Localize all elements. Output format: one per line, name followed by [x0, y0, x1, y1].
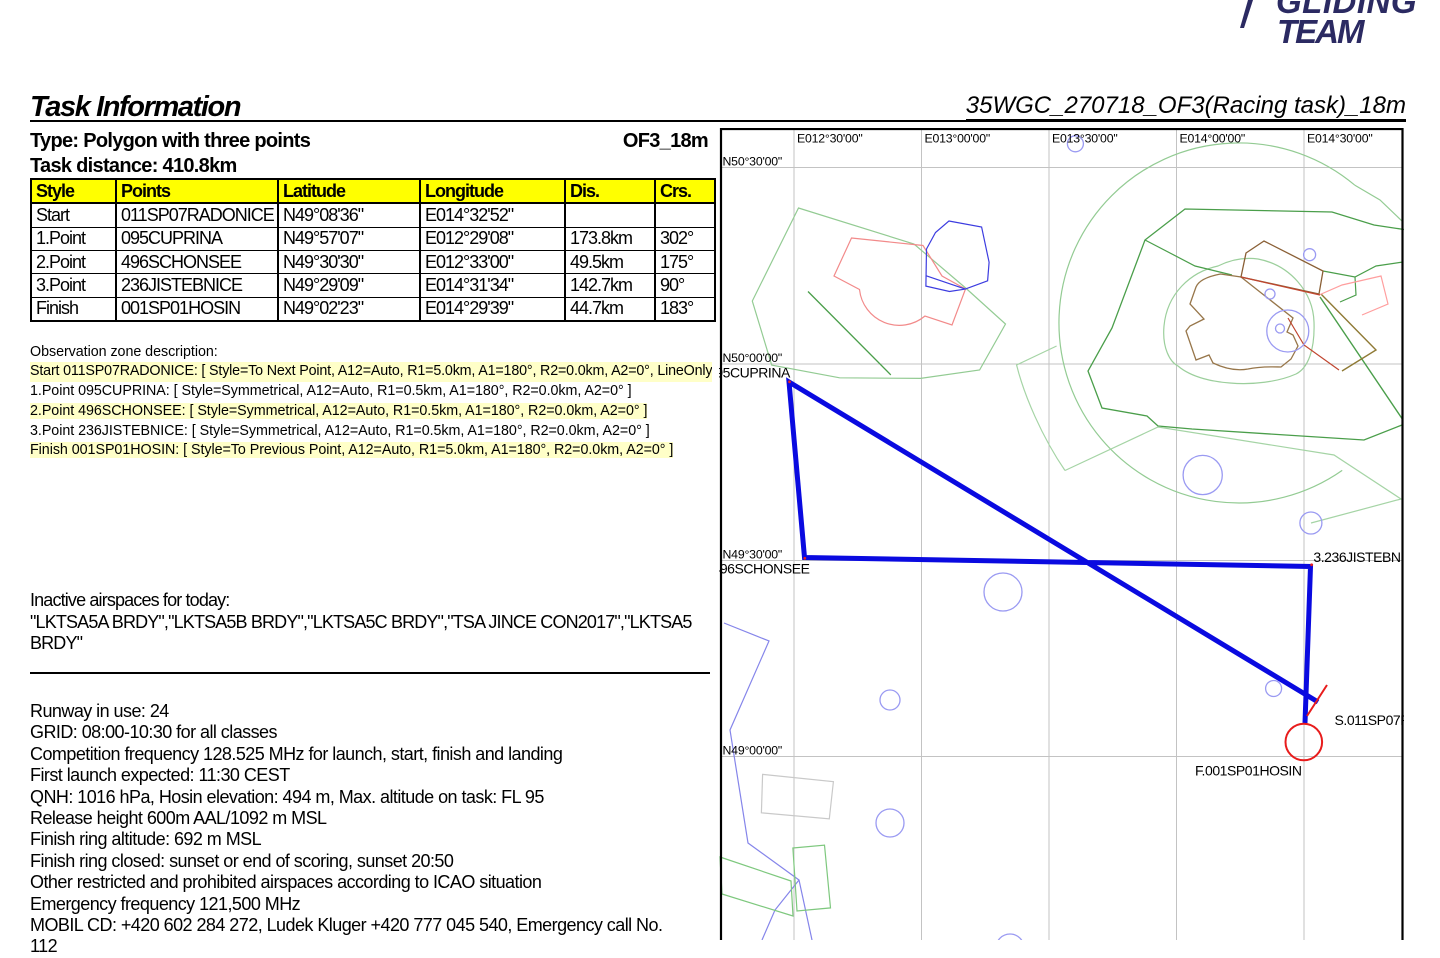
svg-text:E014°30'00": E014°30'00": [1307, 132, 1373, 146]
svg-text:N50°00'00": N50°00'00": [723, 351, 783, 365]
svg-text:095CUPRINA: 095CUPRINA: [708, 365, 791, 381]
svg-text:3.236JISTEBNICE: 3.236JISTEBNICE: [1313, 549, 1422, 565]
svg-text:F.001SP01HOSIN: F.001SP01HOSIN: [1195, 763, 1302, 779]
svg-text:N49°30'00": N49°30'00": [723, 548, 783, 562]
svg-text:E014°00'00": E014°00'00": [1180, 132, 1246, 146]
svg-text:E012°30'00": E012°30'00": [797, 132, 863, 146]
svg-text:E013°00'00": E013°00'00": [925, 132, 991, 146]
svg-text:E013°30'00": E013°30'00": [1052, 132, 1118, 146]
svg-text:N50°30'00": N50°30'00": [723, 155, 783, 169]
svg-text:S.011SP07RADONICE: S.011SP07RADONICE: [1335, 712, 1440, 728]
svg-text:N49°00'00": N49°00'00": [723, 744, 783, 758]
svg-text:496SCHONSEE: 496SCHONSEE: [713, 561, 810, 577]
